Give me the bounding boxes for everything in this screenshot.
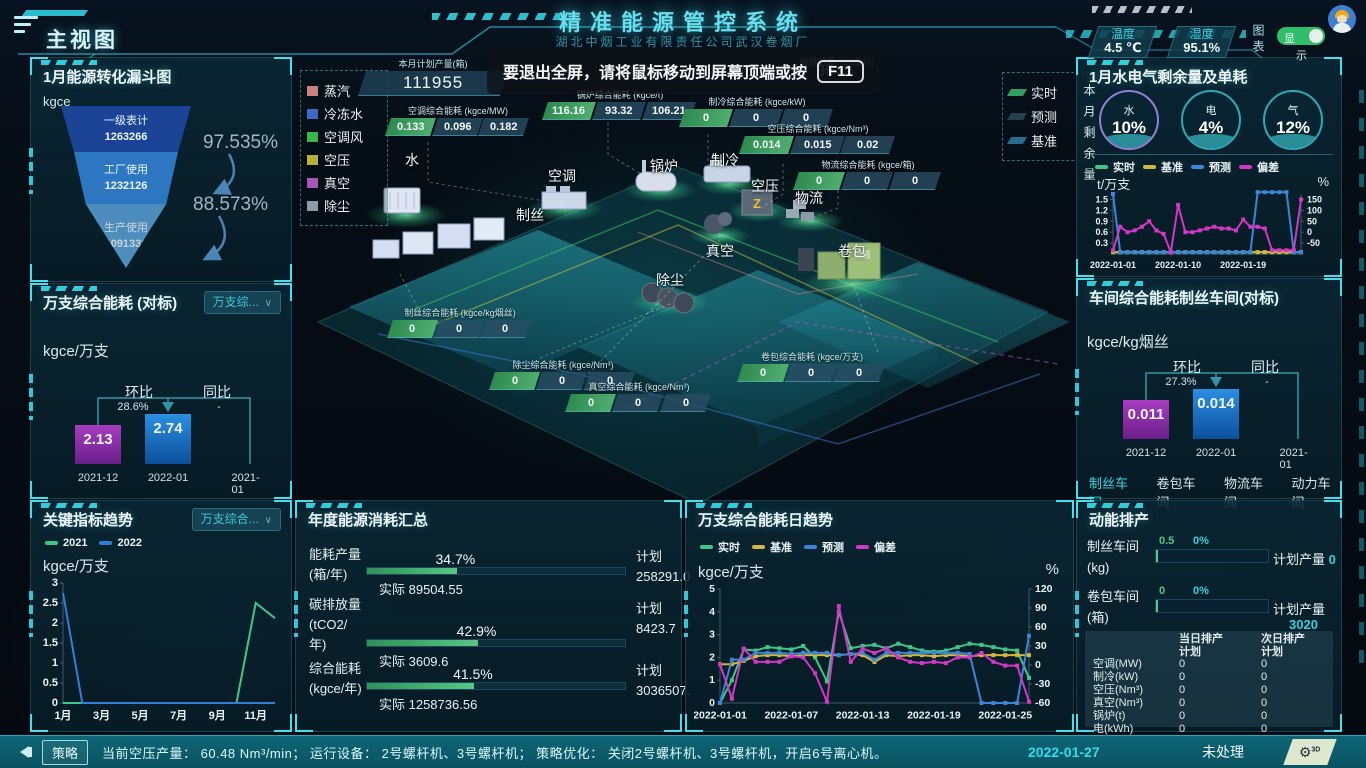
right-edge-decoration [1359,90,1364,670]
annual-actual: 实际 89504.55 [379,579,463,598]
svg-text:2022-01-19: 2022-01-19 [907,710,961,722]
energy-strip: 制丝综合能耗 (kgce/kg烟丝) 000 [390,306,530,338]
strip-cell: 0 [489,372,540,390]
svg-text:0.6: 0.6 [1095,227,1108,237]
strip-cell: 0 [565,394,616,412]
svg-text:0.3: 0.3 [1095,238,1108,248]
strip-label: 物流综合能耗 (kgce/箱) [796,158,940,171]
svg-text:60: 60 [1035,621,1047,633]
legend-item: 偏差 [1239,159,1279,175]
legend-item: 预测 [1191,159,1231,175]
temperature-value: 4.5 ℃ [1104,41,1141,55]
legend-item: 基准 [1143,159,1183,175]
node-label-7: 真空 [706,241,734,261]
strip-cell: 93.32 [592,102,646,120]
legend-swatch [307,178,318,188]
svg-text:Z: Z [753,196,761,211]
strip-label: 空压综合能耗 (kgce/Nm³) [742,122,894,135]
plan-output: 计划产量 0 [1273,549,1336,568]
svg-text:5: 5 [709,583,715,595]
strip-cell: 0 [841,172,893,190]
strip-cell: 0 [679,109,733,127]
strip-label: 空调综合能耗 (kgce/MW) [388,104,528,117]
strip-cell: 0.096 [432,118,483,136]
yoy-value: - [217,401,221,413]
annual-actual: 实际 3609.6 [379,651,448,670]
node-label-9: 卷包 [838,241,866,261]
node-label-5: 空压 [751,176,779,196]
yoy-label: 同比 [1251,357,1279,377]
mom-value: 28.6% [117,401,148,413]
annual-actual: 实际 1258736.56 [379,694,477,713]
flow-legend-item: 空调风 [307,127,381,146]
yoy-value: - [1265,376,1269,388]
f11-key-hint: F11 [817,60,864,83]
annual-plan: 计划8423.7 [636,599,676,638]
svg-text:100: 100 [1307,205,1322,215]
svg-text:2022-01-25: 2022-01-25 [978,710,1032,722]
svg-text:9月: 9月 [209,709,226,722]
svg-text:2: 2 [52,617,58,629]
annual-panel-title: 年度能源消耗汇总 [308,509,428,530]
svg-text:2022-01-13: 2022-01-13 [836,710,890,722]
strip-cell: 0.02 [840,136,895,154]
benchmark-category: 2022-01 [1196,447,1236,459]
strategy-message: 当前空压产量： 60.48 Nm³/min； 运行设备： 2号螺杆机、3号螺杆机… [102,743,887,762]
water-unit-right: % [1317,174,1329,189]
status-date: 2022-01-27 [1028,744,1100,760]
svg-text:7月: 7月 [170,709,187,722]
svg-text:0.9: 0.9 [1095,216,1108,226]
strip-cell: 0 [785,364,837,382]
legend-swatch [307,155,318,165]
node-label-3: 锅炉 [650,156,678,176]
svg-text:1: 1 [709,674,715,686]
table-row: 空调(MW)00 [1085,658,1333,671]
gear-icon: ⚙3D [1299,744,1321,761]
benchmark-bar: 2.74 [145,414,191,464]
energy-strip: 卷包综合能耗 (kgce/万支) 000 [740,350,884,382]
legend-swatch [307,132,318,142]
svg-text:30: 30 [1035,640,1047,652]
svg-text:2022-01-01: 2022-01-01 [694,710,747,722]
svg-text:0: 0 [1307,227,1312,237]
node-label-8: 除尘 [656,270,684,290]
temperature-badge: 温度 4.5 ℃ [1088,26,1158,58]
schedule-panel: 动能排产 制丝车间(kg) 0.5 0% 计划产量 0 卷包车间(箱) 0 0%… [1076,500,1342,732]
legend-item: 实时 [1095,159,1135,175]
svg-text:0: 0 [1035,659,1041,671]
monthly-plan-label: 本月计划产量(箱) [362,57,504,70]
robot-3d-button[interactable]: ⚙3D [1283,739,1336,765]
svg-text:2.5: 2.5 [43,597,58,609]
user-avatar[interactable] [1328,5,1356,33]
svg-text:11月: 11月 [244,709,267,722]
toggle-knob [1309,29,1323,43]
water-line-chart: 0.30.60.91.21.5-500501001502022-01-01202… [1083,188,1335,272]
svg-text:1月: 1月 [54,709,71,722]
display-toggle-off-label: 示 [1296,47,1307,63]
legend-item: 偏差 [856,539,896,555]
table-row: 锅炉(t)00 [1085,710,1333,723]
chevron-down-icon: ∨ [265,298,272,309]
annual-summary-panel: 年度能源消耗汇总 能耗产量(箱/年) 34.7% 实际 89504.55 计划2… [295,500,682,732]
workshop-panel-title: 车间综合能耗制丝车间(对标) [1089,287,1279,308]
display-toggle-on-label: 显 [1284,30,1295,46]
workshop-benchmark-chart: 环比27.3%同比-0.0110.0142021-122022-012021-0… [1083,335,1335,465]
strip-label: 真空综合能耗 (kgce/Nm³) [568,380,710,393]
schedule-percent: 0% [1193,585,1209,597]
legend-item: 预测 [804,539,844,555]
mom-label: 环比 [125,382,153,402]
svg-text:120: 120 [1035,583,1053,595]
flow-legend-item: 冷冻水 [307,104,381,123]
trend-panel-title: 关键指标趋势 [43,509,133,530]
svg-text:1.5: 1.5 [43,637,58,649]
monthly-plan-kpi: 本月计划产量(箱) 111955 [362,57,504,96]
divider [1095,154,1333,155]
svg-text:0: 0 [52,697,58,709]
status-state: 未处理 [1202,742,1244,762]
svg-text:3月: 3月 [93,709,110,722]
svg-text:2: 2 [709,651,715,663]
annual-percent: 41.5% [453,666,493,682]
strip-cell: 0 [387,320,438,338]
svg-text:1: 1 [52,657,58,669]
strip-cell: 0 [793,172,845,190]
strip-cell: 0 [434,320,485,338]
strip-cell: 0.015 [790,136,845,154]
legend-swatch [1007,89,1027,96]
strip-cell: 0 [889,172,941,190]
strip-cell: 0 [612,394,663,412]
humidity-value: 95.1% [1183,41,1220,55]
annual-plan: 计划258291.0 [636,547,690,586]
svg-text:150: 150 [1307,194,1322,204]
benchmark-bar: 0.011 [1123,400,1169,439]
benchmark-category: 2021-12 [1126,447,1166,459]
mom-label: 环比 [1173,357,1201,377]
status-bar: 策略 当前空压产量： 60.48 Nm³/min； 运行设备： 2号螺杆机、3号… [0,735,1366,768]
benchmark-category: 2021-01 [232,472,269,496]
fullscreen-exit-toast: 要退出全屏，请将鼠标移动到屏幕顶端或按 F11 [487,48,880,94]
remaining-donut-气: 气12% [1263,90,1323,150]
benchmark-category: 2022-01 [148,472,188,484]
yoy-label: 同比 [203,382,231,402]
benchmark-bar: 2.13 [75,425,121,464]
strip-cell: 0 [480,320,531,338]
trend-legend: 20212022 [45,537,142,549]
strip-cell: 116.16 [542,102,596,120]
strip-cell: 0.182 [478,118,529,136]
schedule-table-header: 当日排产计划次日排产计划 [1085,631,1333,658]
node-label-1: 空调 [548,166,576,186]
svg-text:3: 3 [52,577,58,589]
legend-swatch [307,201,318,211]
wan-panel-dropdown[interactable]: 万支综...∨ [204,291,281,314]
table-row: 空压(Nm³)00 [1085,684,1333,697]
wan-benchmark-chart: 环比28.6%同比-2.132.742021-122022-012021-01 [35,346,287,492]
flow-legend-item: 空压 [307,150,381,169]
flow-legend-item: 除尘 [307,196,381,215]
funnel-arrows [61,106,281,276]
chevron-down-icon: ∨ [265,515,272,526]
strip-cell: 0 [737,364,789,382]
strip-label: 制丝综合能耗 (kgce/kg烟丝) [390,306,530,319]
strip-cell: 0 [833,364,885,382]
strip-label: 卷包综合能耗 (kgce/万支) [740,350,884,363]
benchmark-category: 2021-12 [78,472,118,484]
schedule-value: 0.5 [1159,535,1174,547]
remaining-donut-电: 电4% [1181,90,1241,150]
energy-strip: 空压综合能耗 (kgce/Nm³) 0.0140.0150.02 [742,122,894,154]
chart-mode-label[interactable]: 图表 [1250,24,1267,56]
annual-percent: 34.7% [436,551,476,567]
funnel-chart: 一级表计1263266工厂使用1232126生产使用109133197.535%… [61,106,281,276]
svg-text:1.5: 1.5 [1095,194,1108,204]
legend-item: 实时 [700,539,740,555]
legend-swatch [307,86,318,96]
svg-text:2022-01-01: 2022-01-01 [1090,260,1136,270]
remaining-donut-水: 水10% [1099,90,1159,150]
svg-text:-30: -30 [1035,678,1050,690]
daily-unit-right: % [1046,561,1059,578]
trend-line-chart: 00.511.522.531月3月5月7月9月11月 [37,575,285,723]
schedule-percent: 0% [1193,535,1209,547]
svg-text:2022-01-07: 2022-01-07 [764,710,818,722]
node-label-2: 制丝 [516,205,544,225]
svg-text:0.5: 0.5 [43,677,58,689]
plan-output: 计划产量 [1273,599,1325,618]
water-station-model [384,188,420,213]
daily-unit-left: kgce/万支 [698,561,764,582]
benchmark-category: 2021-01 [1280,447,1317,471]
trend-panel-dropdown[interactable]: 万支综合...∨ [192,508,281,531]
humidity-badge: 湿度 95.1% [1167,26,1236,58]
energy-strip: 物流综合能耗 (kgce/箱) 000 [796,158,940,190]
node-label-6: 物流 [795,188,823,208]
schedule-panel-title: 动能排产 [1089,509,1149,530]
monthly-plan-value: 111955 [362,71,504,95]
speaker-icon [14,746,29,758]
toast-message: 要退出全屏，请将鼠标移动到屏幕顶端或按 [503,59,807,83]
schedule-value: 0 [1159,585,1165,597]
water-panel-title: 1月水电气剩余量及单耗 [1089,66,1247,87]
svg-text:-50: -50 [1307,238,1320,248]
strip-label: 除尘综合能耗 (kgce/Nm³) [492,358,634,371]
daily-legend: 实时基准预测偏差 [700,539,896,555]
display-toggle[interactable]: 显 [1277,27,1325,45]
svg-text:-60: -60 [1035,697,1050,709]
table-row: 真空(Nm³)00 [1085,697,1333,710]
strip-cell: 0.133 [385,118,436,136]
legend-swatch [1007,113,1027,120]
daily-trend-panel: 万支综合能耗日趋势 实时基准预测偏差 kgce/万支 % 012345-60-3… [685,500,1074,732]
water-legend: 实时基准预测偏差 [1095,159,1279,175]
annual-percent: 42.9% [457,623,497,639]
svg-text:3: 3 [709,629,715,641]
daily-line-chart: 012345-60-3003060901202022-01-012022-01-… [694,581,1065,723]
legend-swatch [307,109,318,119]
key-trend-panel: 关键指标趋势 万支综合...∨ 20212022 kgce/万支 00.511.… [30,500,292,732]
funnel-panel: 1月能源转化漏斗图 kgce 一级表计1263266工厂使用1232126生产使… [30,57,292,282]
funnel-panel-title: 1月能源转化漏斗图 [43,66,171,87]
annual-plan: 计划3036507. [636,661,690,700]
svg-text:2022-01-19: 2022-01-19 [1220,260,1266,270]
trend-unit: kgce/万支 [43,555,109,576]
energy-strip: 真空综合能耗 (kgce/Nm³) 000 [568,380,710,412]
wan-panel-title: 万支综合能耗 (对标) [43,292,177,313]
svg-text:2022-01-10: 2022-01-10 [1155,260,1201,270]
legend-item: 基准 [752,539,792,555]
benchmark-bar: 0.014 [1193,389,1239,439]
strip-label: 制冷综合能耗 (kgce/kW) [682,95,832,108]
hvac-model [542,186,586,209]
svg-text:0: 0 [709,697,715,709]
workshop-benchmark-panel: 车间综合能耗制丝车间(对标) kgce/kg烟丝 环比27.3%同比-0.011… [1076,278,1342,499]
flow-legend-item: 真空 [307,173,381,192]
wan-benchmark-panel: 万支综合能耗 (对标) 万支综...∨ kgce/万支 环比28.6%同比-2.… [30,283,292,499]
node-label-0: 水 [405,150,419,170]
svg-text:5月: 5月 [132,709,149,722]
svg-text:50: 50 [1307,216,1317,226]
strategy-badge[interactable]: 策略 [42,740,88,765]
strip-cell: 0.014 [739,136,794,154]
daily-panel-title: 万支综合能耗日趋势 [698,509,833,530]
strip-cell: 0 [660,394,711,412]
water-elec-gas-panel: 1月水电气剩余量及单耗 本月剩余量 水10% 电4% 气12% 实时基准预测偏差… [1076,57,1342,277]
legend-item: 2021 [45,537,87,549]
mom-value: 27.3% [1165,376,1196,388]
energy-strip: 空调综合能耗 (kgce/MW) 0.1330.0960.182 [388,104,528,136]
node-label-4: 制冷 [711,150,739,170]
legend-item: 2022 [99,537,141,549]
schedule-table: 当日排产计划次日排产计划空调(MW)00制冷(kW)00空压(Nm³)00真空(… [1085,631,1333,727]
svg-text:4: 4 [709,606,715,618]
svg-text:1.2: 1.2 [1095,205,1108,215]
legend-swatch [1007,137,1027,144]
table-row: 制冷(kW)00 [1085,671,1333,684]
svg-text:90: 90 [1035,602,1047,614]
